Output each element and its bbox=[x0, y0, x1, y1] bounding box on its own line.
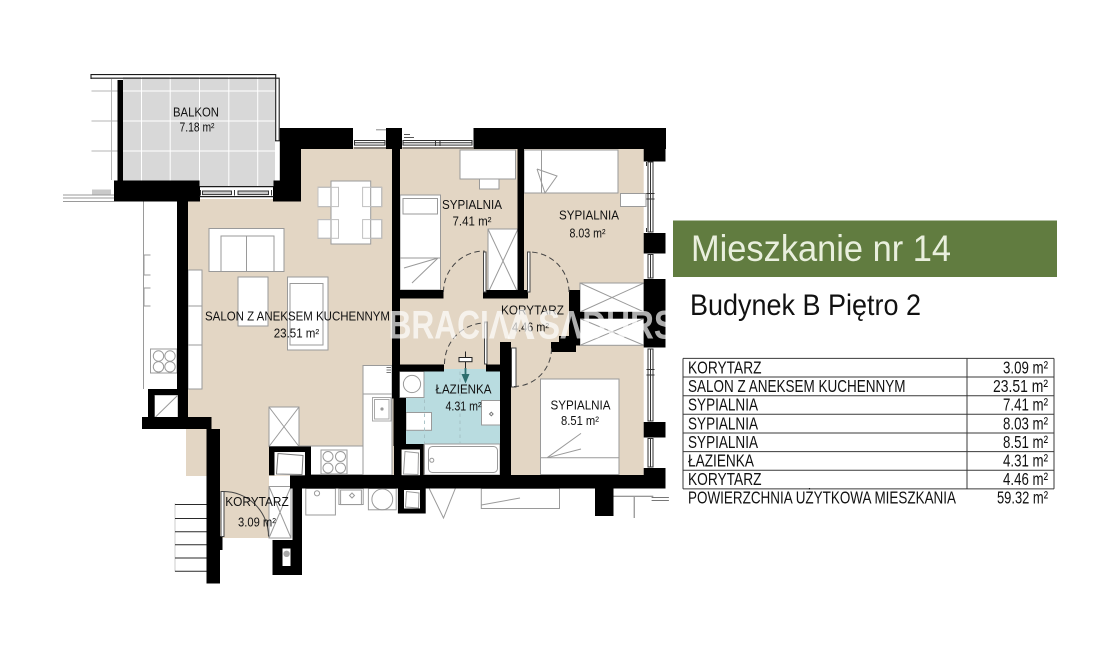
svg-text:KORYTARZ: KORYTARZ bbox=[688, 469, 762, 489]
svg-text:Mieszkanie nr 14: Mieszkanie nr 14 bbox=[691, 228, 951, 269]
svg-text:SYPIALNIA: SYPIALNIA bbox=[688, 432, 758, 452]
svg-text:SYPIALNIA: SYPIALNIA bbox=[688, 413, 758, 433]
svg-text:SALON Z ANEKSEM KUCHENNYM: SALON Z ANEKSEM KUCHENNYM bbox=[688, 376, 906, 396]
svg-text:SYPIALNIA: SYPIALNIA bbox=[551, 398, 611, 413]
svg-text:7.41 m²: 7.41 m² bbox=[1003, 395, 1048, 415]
svg-text:ŁAZIENKA: ŁAZIENKA bbox=[688, 451, 754, 471]
svg-text:8.03 m²: 8.03 m² bbox=[1003, 413, 1048, 433]
svg-text:BRACIΛ: BRACIΛ bbox=[389, 304, 511, 348]
svg-text:Budynek B Piętro 2: Budynek B Piętro 2 bbox=[690, 289, 921, 322]
svg-text:23.51 m²: 23.51 m² bbox=[274, 326, 320, 341]
svg-text:4.31 m²: 4.31 m² bbox=[446, 399, 482, 414]
svg-text:SYPIALNIA: SYPIALNIA bbox=[442, 197, 502, 212]
svg-text:8.03 m²: 8.03 m² bbox=[570, 226, 606, 241]
svg-text:SYPIALNIA: SYPIALNIA bbox=[688, 395, 758, 415]
svg-text:BALKON: BALKON bbox=[173, 105, 219, 120]
svg-text:4.46 m²: 4.46 m² bbox=[1003, 469, 1048, 489]
svg-text:KORYTARZ: KORYTARZ bbox=[688, 357, 762, 377]
svg-text:59.32 m²: 59.32 m² bbox=[997, 488, 1048, 508]
svg-text:3.09 m²: 3.09 m² bbox=[238, 515, 277, 530]
svg-text:3.09 m²: 3.09 m² bbox=[1003, 357, 1048, 377]
svg-text:SALON Z ANEKSEM KUCHENNYM: SALON Z ANEKSEM KUCHENNYM bbox=[205, 309, 390, 324]
svg-text:8.51 m²: 8.51 m² bbox=[1003, 432, 1048, 452]
svg-text:KORYTARZ: KORYTARZ bbox=[225, 494, 289, 509]
svg-text:4.31 m²: 4.31 m² bbox=[1003, 451, 1048, 471]
svg-text:7.18 m²: 7.18 m² bbox=[180, 120, 215, 135]
svg-text:POWIERZCHNIA UŻYTKOWA MIESZKAN: POWIERZCHNIA UŻYTKOWA MIESZKANIA bbox=[688, 488, 956, 508]
svg-text:8.51 m²: 8.51 m² bbox=[561, 413, 600, 428]
svg-text:7.41 m²: 7.41 m² bbox=[453, 214, 493, 229]
svg-text:SYPIALNIA: SYPIALNIA bbox=[559, 208, 619, 223]
svg-text:ŁAZIENKA: ŁAZIENKA bbox=[436, 382, 492, 397]
svg-text:23.51 m²: 23.51 m² bbox=[993, 376, 1048, 396]
